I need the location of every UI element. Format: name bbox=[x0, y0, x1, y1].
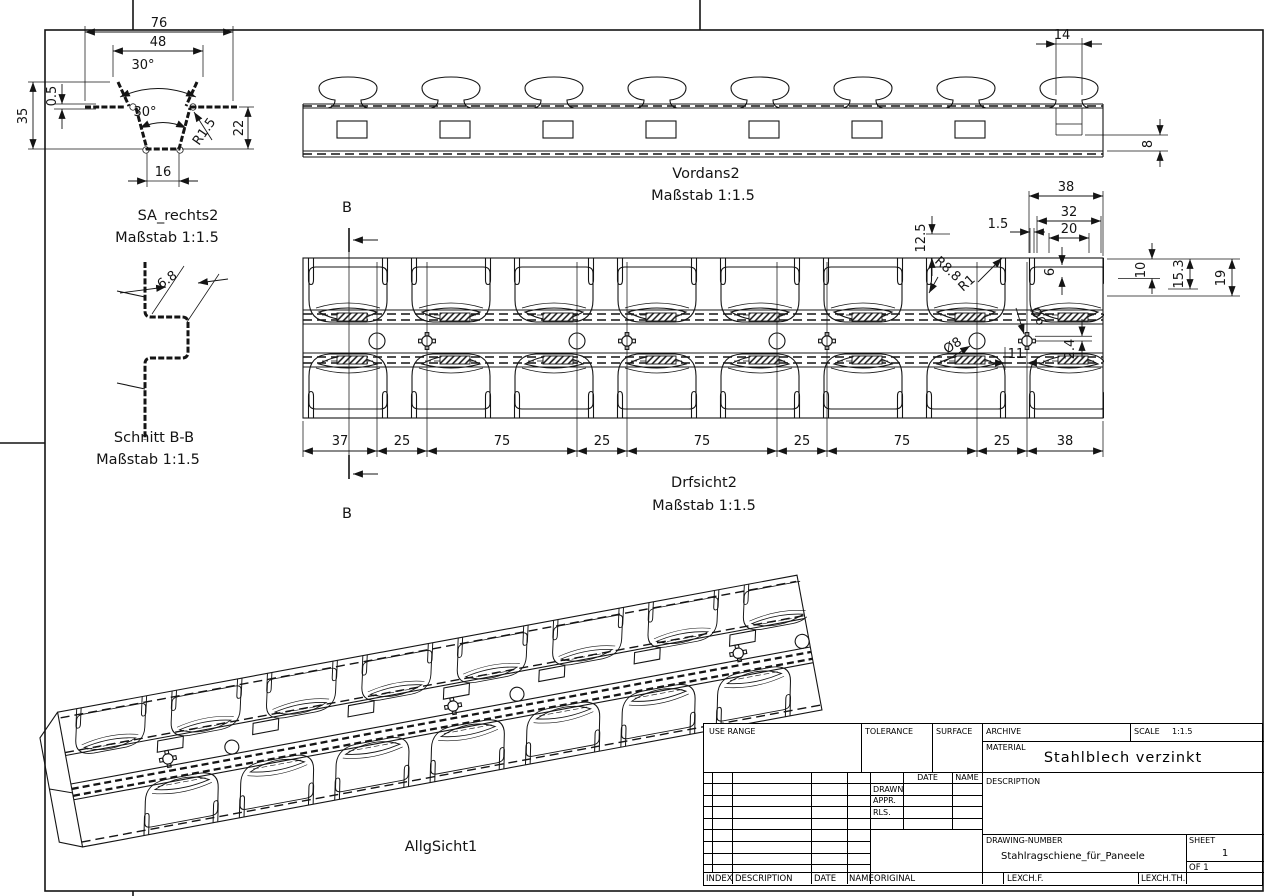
tb-appr: APPR. bbox=[873, 797, 896, 805]
tb-lexchth: LEXCH.TH. bbox=[1141, 875, 1185, 884]
vordans-rail bbox=[303, 77, 1103, 157]
dim-10: 10 bbox=[1134, 262, 1149, 279]
dim-15-3: 15.3 bbox=[1172, 260, 1187, 289]
dim-dia6: Ø6 bbox=[1026, 305, 1048, 328]
pitch-dim: 25 bbox=[994, 434, 1011, 449]
dim-angle-top: 30° bbox=[131, 58, 154, 73]
view-scale-drf: Maßstab 1:1.5 bbox=[652, 498, 756, 514]
tb-use-range: USE RANGE bbox=[709, 728, 755, 736]
view-scale-vordans: Maßstab 1:1.5 bbox=[651, 188, 755, 204]
dim-r15: R1.5 bbox=[190, 115, 219, 148]
view-schnitt-bb: 6.8 Schnitt B-B Maßstab 1:1.5 bbox=[96, 262, 228, 468]
dim-20: 20 bbox=[1061, 222, 1078, 237]
view-title-sa: SA_rechts2 bbox=[138, 208, 219, 224]
view-title-iso: AllgSicht1 bbox=[405, 839, 478, 855]
vordans-dimensions: 14 8 bbox=[1036, 28, 1168, 167]
tb-date-header: DATE bbox=[903, 774, 952, 782]
dim-12-5: 12.5 bbox=[914, 224, 929, 253]
tb-lexchf: LEXCH.F. bbox=[1007, 875, 1043, 884]
pitch-dim: 37 bbox=[332, 434, 349, 449]
tb-of-value: OF 1 bbox=[1189, 864, 1209, 873]
title-block: USE RANGE TOLERANCE SURFACE ARCHIVE SCAL… bbox=[703, 723, 1263, 886]
drf-pitch-dimensions: 37 25 75 25 75 25 75 25 38 bbox=[303, 434, 1103, 451]
tb-drawing-number-value: Stahlragschiene_für_Paneele bbox=[1001, 852, 1145, 862]
tb-description2: DESCRIPTION bbox=[735, 875, 793, 884]
tb-scale-value: 1:1.5 bbox=[1172, 728, 1193, 736]
dim-16: 16 bbox=[155, 165, 172, 180]
sa-dimensions: 76 48 30° 30° 35 0.5 22 R1.5 16 bbox=[16, 16, 254, 187]
dim-32: 32 bbox=[1061, 205, 1078, 220]
tb-original: ORIGINAL bbox=[874, 875, 915, 884]
pitch-dim: 25 bbox=[394, 434, 411, 449]
tb-name2: NAME bbox=[849, 875, 874, 884]
dim-14: 14 bbox=[1054, 28, 1071, 43]
drf-dimensions-right: 10 15.3 19 bbox=[1107, 243, 1240, 296]
tb-scale-label: SCALE bbox=[1134, 728, 1160, 736]
tb-drawing-number-label: DRAWING-NUMBER bbox=[986, 837, 1063, 845]
pitch-dim: 25 bbox=[794, 434, 811, 449]
view-vordans2: 14 8 Vordans2 Maßstab 1:1.5 bbox=[303, 28, 1168, 204]
section-letter-bottom: B bbox=[342, 506, 352, 522]
dim-8: 8 bbox=[1141, 140, 1156, 148]
drf-dimensions-top: 38 32 20 1.5 12.5 6 bbox=[914, 180, 1103, 295]
dim-05: 0.5 bbox=[45, 86, 60, 107]
pitch-dim: 75 bbox=[694, 434, 711, 449]
view-sa-rechts2: 76 48 30° 30° 35 0.5 22 R1.5 16 SA_recht… bbox=[16, 16, 254, 246]
tb-sheet-value: 1 bbox=[1186, 849, 1264, 859]
pitch-dim: 75 bbox=[894, 434, 911, 449]
dim-48: 48 bbox=[150, 35, 167, 50]
bb-dimension: 6.8 bbox=[120, 266, 228, 322]
tb-surface: SURFACE bbox=[936, 728, 972, 736]
tb-archive: ARCHIVE bbox=[986, 728, 1021, 736]
section-letter-top: B bbox=[342, 200, 352, 216]
view-scale-sa: Maßstab 1:1.5 bbox=[115, 230, 219, 246]
dim-11: 11 bbox=[1008, 347, 1025, 362]
view-title-drf: Drfsicht2 bbox=[671, 475, 737, 491]
tb-rls: RLS. bbox=[873, 809, 891, 817]
drf-hole-callouts: Ø8 Ø6 2.4 11 R8.8 R1 bbox=[929, 254, 1092, 370]
dim-38: 38 bbox=[1058, 180, 1075, 195]
pitch-dim: 25 bbox=[594, 434, 611, 449]
view-title-bb: Schnitt B-B bbox=[114, 430, 194, 446]
dim-22: 22 bbox=[232, 120, 247, 137]
tb-tolerance: TOLERANCE bbox=[865, 728, 913, 736]
dim-angle-bottom: 30° bbox=[133, 105, 156, 120]
tb-sheet-label: SHEET bbox=[1189, 837, 1215, 845]
dim-68: 6.8 bbox=[155, 268, 181, 292]
tb-drawn: DRAWN bbox=[873, 786, 903, 794]
pitch-dim: 38 bbox=[1057, 434, 1074, 449]
dim-19: 19 bbox=[1214, 270, 1229, 287]
drf-pattern bbox=[303, 258, 1109, 418]
dim-76: 76 bbox=[151, 16, 168, 31]
tb-material-value: Stahlblech verzinkt bbox=[982, 751, 1264, 766]
tb-name-header: NAME bbox=[952, 774, 982, 782]
pitch-dim: 75 bbox=[494, 434, 511, 449]
dim-6: 6 bbox=[1043, 268, 1058, 276]
view-title-vordans: Vordans2 bbox=[672, 166, 739, 182]
tb-date2: DATE bbox=[814, 875, 836, 884]
sa-profile bbox=[85, 82, 237, 153]
tb-index: INDEX bbox=[706, 875, 733, 884]
dim-2-4: 2.4 bbox=[1063, 339, 1078, 360]
dim-1-5: 1.5 bbox=[988, 217, 1009, 232]
tb-description-label: DESCRIPTION bbox=[986, 778, 1040, 786]
view-scale-bb: Maßstab 1:1.5 bbox=[96, 452, 200, 468]
view-drfsicht2: B B 38 32 20 1.5 12.5 6 10 15.3 bbox=[303, 180, 1240, 522]
dim-35: 35 bbox=[16, 108, 31, 125]
